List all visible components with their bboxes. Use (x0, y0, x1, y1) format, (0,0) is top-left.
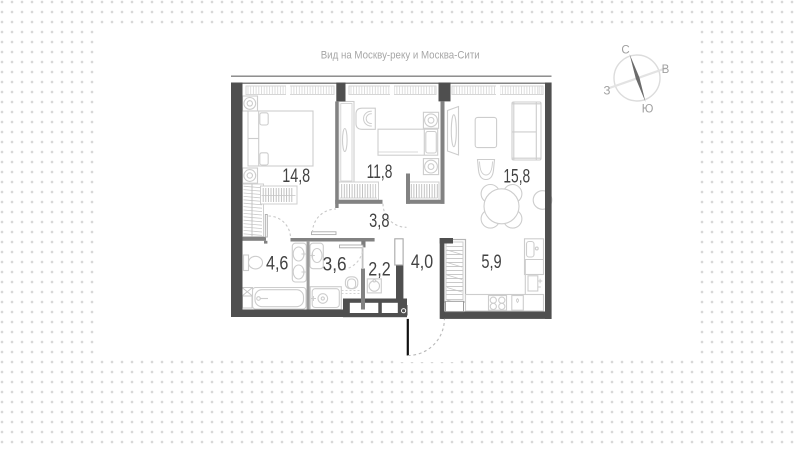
svg-text:3,6: 3,6 (323, 254, 347, 275)
svg-text:Вид на Москву-реку и Москва-Си: Вид на Москву-реку и Москва-Сити (321, 50, 480, 62)
svg-text:4,0: 4,0 (411, 252, 433, 273)
svg-text:З: З (604, 86, 611, 98)
svg-text:Ю: Ю (642, 104, 654, 116)
svg-text:3,8: 3,8 (369, 211, 389, 232)
svg-text:11,8: 11,8 (367, 162, 393, 183)
svg-text:4,6: 4,6 (266, 254, 289, 275)
svg-text:С: С (621, 45, 629, 57)
svg-text:14,8: 14,8 (282, 166, 310, 187)
svg-text:2,2: 2,2 (368, 260, 390, 281)
svg-text:15,8: 15,8 (503, 167, 530, 188)
svg-text:5,9: 5,9 (481, 252, 501, 273)
svg-text:В: В (662, 64, 670, 76)
